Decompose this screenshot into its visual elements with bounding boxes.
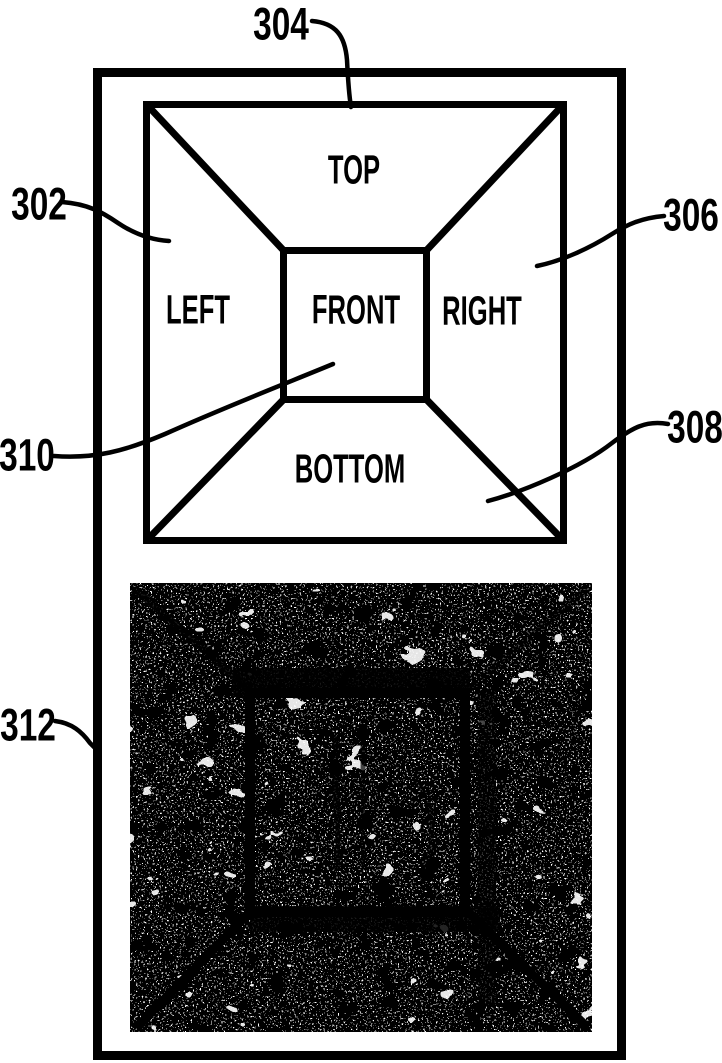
callout-302: 302 — [11, 182, 67, 228]
textured-bottom-shadow-band — [250, 906, 500, 932]
face-label-front: FRONT — [312, 290, 400, 331]
patent-figure-canvas: TOP LEFT FRONT RIGHT BOTTOM 304 302 306 … — [0, 0, 722, 1063]
textured-scene-stroke-2 — [361, 745, 365, 865]
textured-panel — [130, 583, 592, 1032]
leader-306 — [537, 216, 664, 266]
textured-top-shadow-band — [233, 668, 470, 696]
callout-312: 312 — [0, 703, 56, 749]
face-label-bottom: BOTTOM — [295, 449, 405, 490]
diagonal-top-right — [424, 107, 561, 253]
diagonal-bottom-left — [149, 397, 286, 538]
leader-302 — [62, 202, 169, 241]
textured-right-edge-streak — [478, 690, 496, 1005]
face-label-top: TOP — [328, 150, 380, 191]
diagonal-bottom-right — [424, 397, 561, 538]
face-label-right: RIGHT — [442, 291, 522, 332]
face-label-left: LEFT — [166, 290, 230, 331]
callout-306: 306 — [663, 193, 719, 239]
callout-310: 310 — [0, 433, 55, 479]
diagonal-top-left — [149, 107, 286, 253]
callout-308: 308 — [667, 405, 722, 451]
leader-312 — [55, 721, 96, 749]
leader-304 — [312, 21, 351, 107]
callout-304: 304 — [253, 2, 309, 48]
